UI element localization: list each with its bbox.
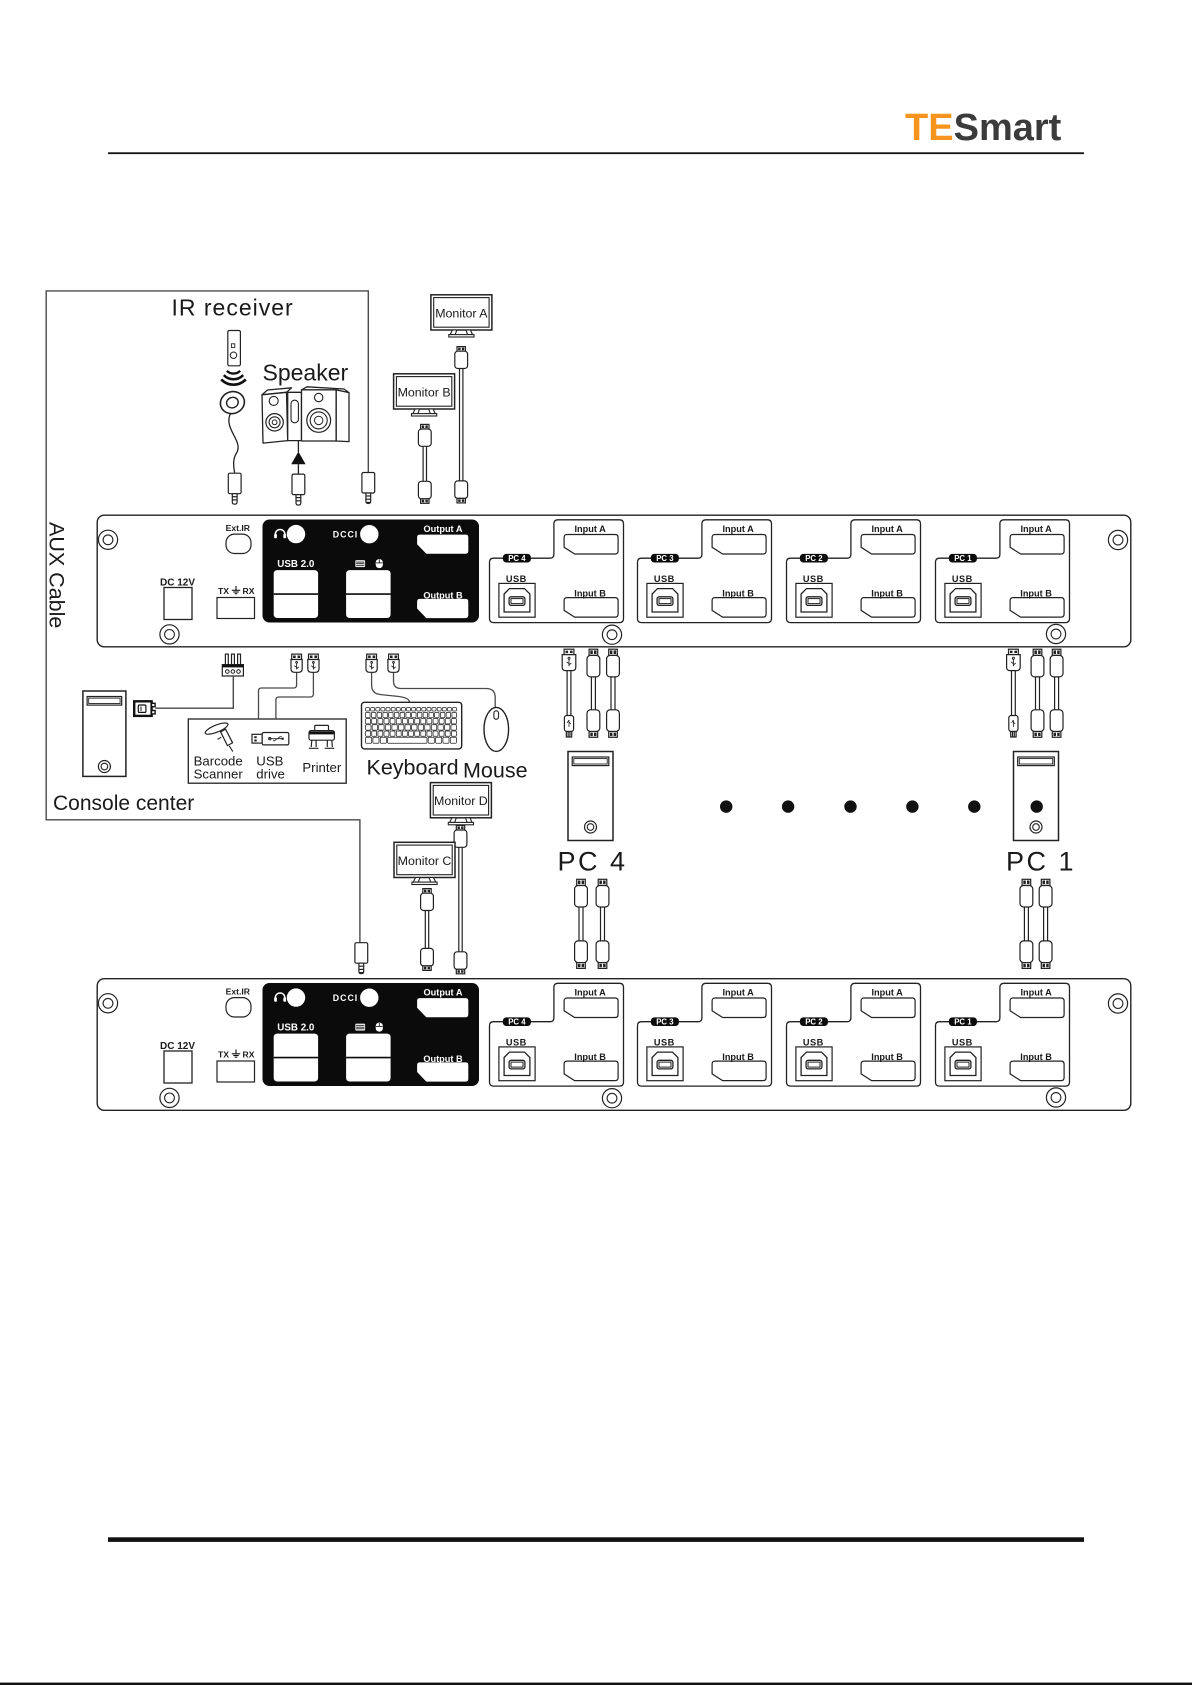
svg-text:DC 12V: DC 12V [160, 578, 195, 589]
svg-text:Input B: Input B [574, 589, 606, 599]
svg-text:Input B: Input B [574, 1052, 606, 1062]
svg-text:Input A: Input A [1020, 524, 1052, 534]
svg-text:AUX Cable: AUX Cable [45, 522, 69, 628]
svg-text:Console center: Console center [53, 792, 194, 815]
svg-text:USB 2.0: USB 2.0 [277, 1023, 315, 1034]
svg-text:Input B: Input B [722, 1052, 754, 1062]
svg-text:Input B: Input B [1020, 589, 1052, 599]
svg-text:PC 1: PC 1 [1006, 847, 1076, 877]
svg-text:Input A: Input A [722, 524, 754, 534]
svg-text:USB: USB [654, 1038, 675, 1048]
svg-text:DCCI: DCCI [333, 530, 359, 540]
svg-text:USB: USB [952, 574, 973, 584]
svg-text:Input A: Input A [871, 524, 903, 534]
svg-text:PC 4: PC 4 [558, 847, 628, 877]
svg-text:Input B: Input B [871, 1052, 903, 1062]
svg-text:Input B: Input B [1020, 1052, 1052, 1062]
svg-text:Output A: Output A [424, 524, 463, 534]
svg-text:USB: USB [803, 574, 824, 584]
svg-text:USB 2.0: USB 2.0 [277, 559, 315, 570]
svg-text:Input A: Input A [574, 524, 606, 534]
svg-text:PC 2: PC 2 [805, 1017, 823, 1026]
svg-text:IR receiver: IR receiver [172, 294, 294, 320]
svg-text:PC 3: PC 3 [656, 1017, 674, 1026]
svg-text:RX: RX [243, 1050, 255, 1060]
svg-text:Printer: Printer [302, 760, 341, 775]
svg-text:Monitor A: Monitor A [435, 306, 488, 320]
svg-text:Monitor B: Monitor B [398, 385, 451, 399]
svg-text:Input A: Input A [1020, 988, 1052, 998]
svg-text:USB: USB [952, 1038, 973, 1048]
svg-text:TX: TX [218, 1050, 229, 1060]
svg-text:Input A: Input A [722, 988, 754, 998]
svg-text:Input A: Input A [871, 988, 903, 998]
svg-text:drive: drive [256, 767, 285, 782]
svg-text:Monitor C: Monitor C [398, 854, 452, 868]
svg-text:PC 1: PC 1 [954, 554, 972, 563]
svg-text:PC 2: PC 2 [805, 554, 823, 563]
svg-text:Smart: Smart [954, 107, 1062, 149]
svg-text:USB: USB [654, 574, 675, 584]
svg-text:PC 4: PC 4 [508, 554, 526, 563]
svg-text:Input B: Input B [871, 589, 903, 599]
svg-text:Monitor D: Monitor D [434, 794, 488, 808]
svg-text:Output A: Output A [424, 988, 463, 998]
svg-text:DC 12V: DC 12V [160, 1041, 195, 1052]
svg-text:PC 1: PC 1 [954, 1017, 972, 1026]
svg-text:USB: USB [506, 1038, 527, 1048]
svg-text:TX: TX [218, 586, 229, 596]
svg-text:Input B: Input B [722, 589, 754, 599]
svg-text:USB: USB [803, 1038, 824, 1048]
svg-text:Ext.IR: Ext.IR [226, 986, 251, 996]
svg-text:Ext.IR: Ext.IR [226, 523, 251, 533]
svg-text:PC 4: PC 4 [508, 1017, 526, 1026]
svg-text:Keyboard: Keyboard [367, 756, 459, 780]
svg-text:USB: USB [506, 574, 527, 584]
svg-text:Speaker: Speaker [263, 360, 349, 386]
svg-text:Input A: Input A [574, 988, 606, 998]
svg-text:RX: RX [243, 586, 255, 596]
svg-text:TE: TE [905, 107, 954, 149]
svg-text:PC 3: PC 3 [656, 554, 674, 563]
svg-text:Mouse: Mouse [463, 759, 528, 783]
svg-text:DCCI: DCCI [333, 993, 359, 1003]
svg-text:Scanner: Scanner [194, 767, 244, 782]
